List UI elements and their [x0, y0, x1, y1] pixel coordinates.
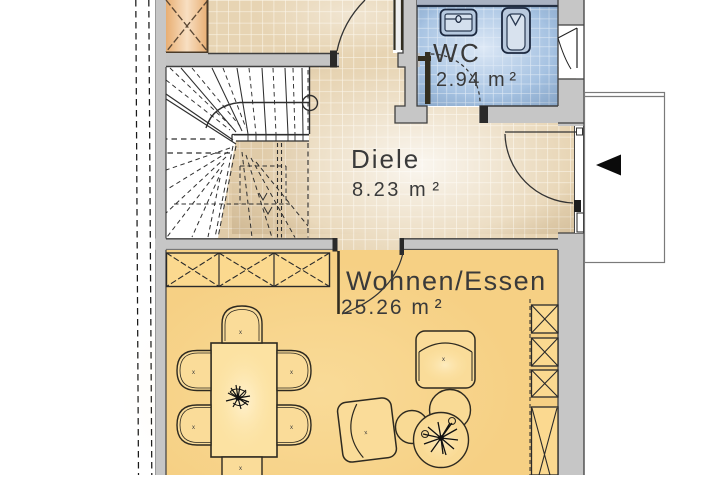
svg-text:x: x	[239, 330, 242, 336]
svg-text:x: x	[442, 357, 445, 363]
svg-text:x: x	[192, 425, 195, 431]
svg-text:8.23 m ²: 8.23 m ²	[352, 179, 441, 201]
svg-text:x: x	[290, 370, 293, 376]
svg-text:2.94 m ²: 2.94 m ²	[436, 69, 517, 91]
svg-text:Diele: Diele	[351, 144, 420, 174]
svg-text:Wohnen/Essen: Wohnen/Essen	[346, 266, 547, 296]
svg-text:WC: WC	[433, 38, 481, 68]
svg-text:x: x	[239, 466, 242, 472]
svg-text:25.26 m ²: 25.26 m ²	[341, 296, 444, 319]
svg-text:x: x	[290, 425, 293, 431]
svg-text:x: x	[192, 370, 195, 376]
